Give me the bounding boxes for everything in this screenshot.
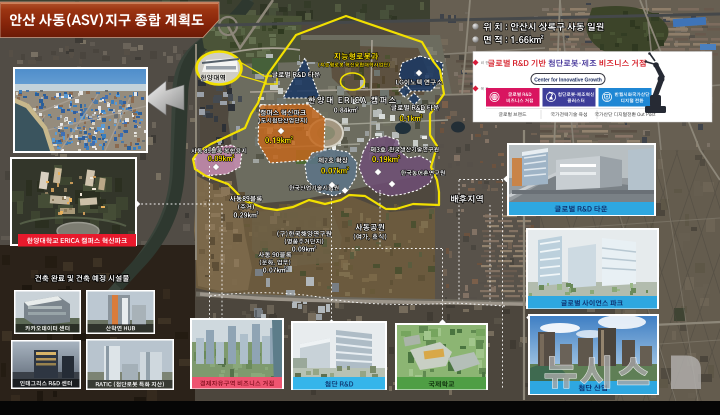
svg-text:Center for Innovative Growth: Center for Innovative Growth — [534, 77, 602, 83]
